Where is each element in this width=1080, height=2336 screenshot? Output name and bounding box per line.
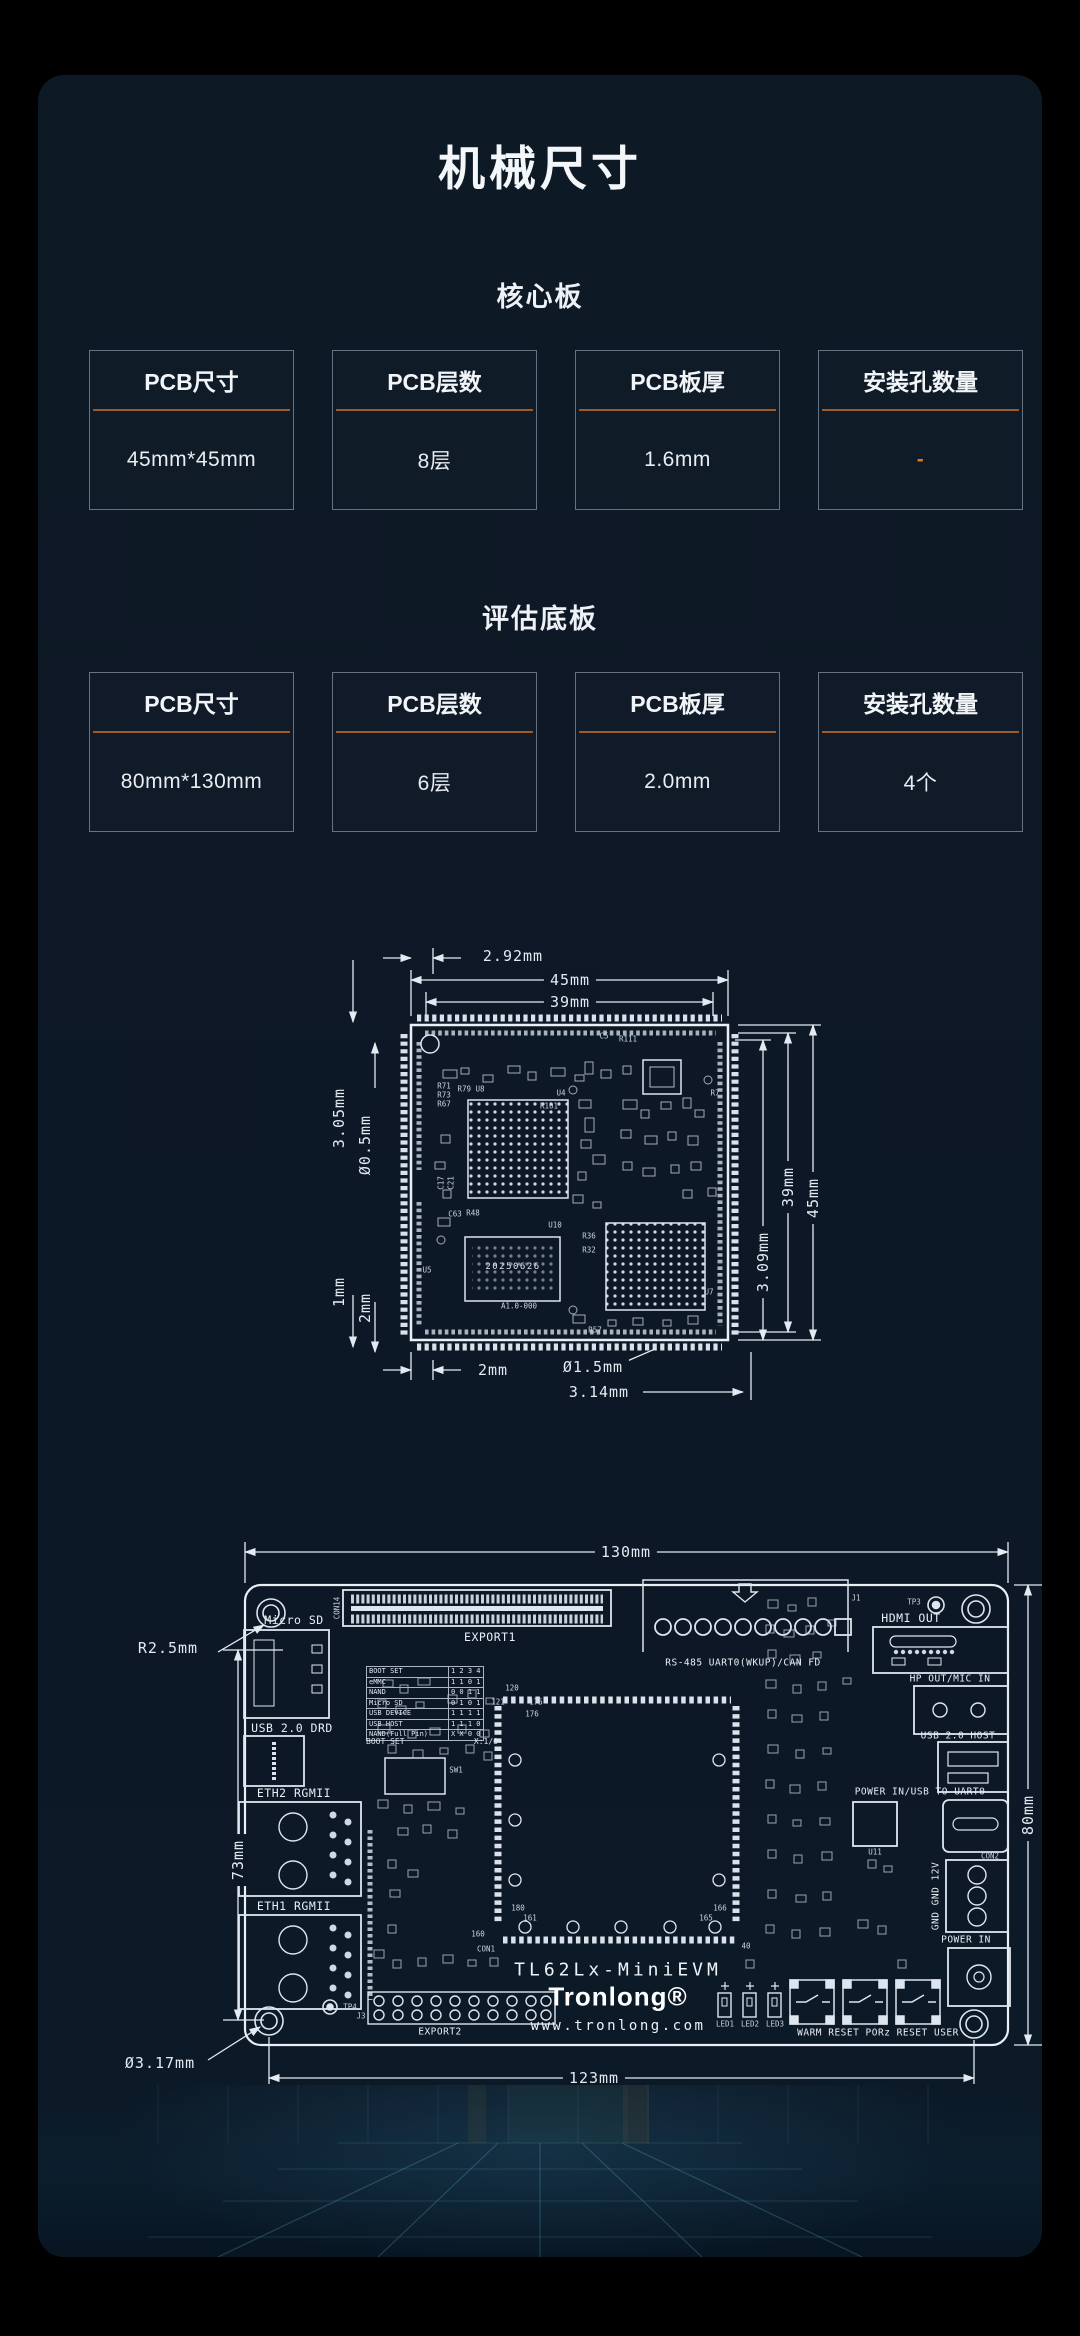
boot-mode-bits: 1 1 1 0 [448, 1720, 483, 1730]
spec-card-value: 6层 [333, 733, 536, 831]
boot-footer-right: X:1/0 [474, 1737, 498, 1746]
reference-designator: U7 [704, 1288, 713, 1297]
reference-designator: 121 [491, 1698, 505, 1707]
port-label: GND GND 12V [931, 1862, 942, 1930]
spec-card: PCB层数 8层 [332, 350, 537, 510]
reference-designator: 166 [713, 1904, 727, 1913]
section-title-baseboard: 评估底板 [38, 597, 1042, 636]
dimension-label: Ø0.5mm [356, 1115, 374, 1175]
boot-mode-row: USB DEVICE 1 1 1 1 [367, 1709, 483, 1720]
led-label: LED3 [766, 2020, 784, 2029]
reference-designator: U11 [868, 1848, 882, 1857]
spec-card-value: - [819, 411, 1022, 509]
boot-mode-name: Micro SD [367, 1699, 448, 1709]
reference-designator: CON1 [477, 1945, 495, 1954]
port-label: HP OUT/MIC IN [910, 1674, 991, 1685]
tronlong-logo: Tronlong® [548, 1982, 687, 2013]
boot-mode-bits: 0 1 0 1 [448, 1699, 483, 1709]
reference-designator: R79 U8 [457, 1085, 484, 1094]
dimension-label: Ø1.5mm [557, 1358, 629, 1376]
export2-header [368, 1992, 555, 2024]
boot-mode-name: eMMC [367, 1678, 448, 1688]
reference-designator: J1 [851, 1594, 860, 1603]
reference-designator: TP3 [907, 1598, 921, 1607]
dimension-label: 3.09mm [754, 1226, 772, 1298]
dimension-label: R2.5mm [138, 1639, 198, 1657]
reference-designator: R67 [437, 1100, 451, 1109]
reference-designator: C5 [599, 1032, 608, 1041]
page-title: 机械尺寸 [38, 130, 1042, 199]
spec-card: PCB尺寸 80mm*130mm [89, 672, 294, 832]
dimension-label: 73mm [229, 1834, 247, 1886]
vendor-url-silkscreen: www.tronlong.com [531, 2018, 706, 2034]
port-label: USB 2.0 HOST [921, 1731, 996, 1742]
pmic-chip [643, 1060, 681, 1094]
perspective-grid [38, 2085, 1042, 2257]
content-panel: 机械尺寸 核心板 PCB尺寸 45mm*45mm PCB层数 8层 PCB板厚 … [38, 75, 1042, 2257]
spec-card-label: 安装孔数量 [819, 673, 1022, 731]
dimension-label: 130mm [595, 1543, 657, 1561]
spec-card-label: PCB板厚 [576, 673, 779, 731]
spec-card-label: PCB尺寸 [90, 351, 293, 409]
boot-mode-bits: 0 0 1 1 [448, 1688, 483, 1698]
boot-footer-left: BOOT SET [366, 1737, 405, 1746]
reference-designator: R101 [540, 1102, 558, 1111]
spec-card: PCB层数 6层 [332, 672, 537, 832]
reference-designator: R36 [582, 1232, 596, 1241]
spec-card: PCB板厚 2.0mm [575, 672, 780, 832]
dimension-label: 2mm [472, 1361, 514, 1379]
dimension-label: 45mm [804, 1172, 822, 1224]
dimension-label: 2mm [356, 1293, 374, 1323]
reference-designator: TP4 [343, 2003, 357, 2012]
push-buttons [790, 1980, 940, 2024]
spec-card-value: 45mm*45mm [90, 411, 293, 509]
reference-designator: C17 [437, 1176, 446, 1190]
reference-designator: 180 [511, 1904, 525, 1913]
hdmi-pins [894, 1650, 954, 1654]
spec-card-value: 2.0mm [576, 733, 779, 831]
reference-designator: R57 [588, 1326, 602, 1335]
boot-mode-bits: 1 1 1 1 [448, 1709, 483, 1719]
reference-designator: U10 [548, 1221, 562, 1230]
spec-card-label: PCB尺寸 [90, 673, 293, 731]
dimension-label: 2.92mm [483, 947, 543, 965]
dimension-label: 3.14mm [563, 1383, 635, 1401]
emmc-bga-chip [606, 1223, 705, 1310]
spec-card-label: PCB层数 [333, 673, 536, 731]
left-edge-connectors [239, 1630, 361, 2009]
dimension-label: 39mm [544, 993, 596, 1011]
spec-card-value: 1.6mm [576, 411, 779, 509]
dimension-label: 1mm [330, 1277, 348, 1307]
dimension-label: 3.05mm [330, 1088, 348, 1148]
section-title-core-board: 核心板 [38, 275, 1042, 314]
led-label: LED1 [716, 2020, 734, 2029]
reference-designator: 176 [525, 1710, 539, 1719]
port-label: EXPORT1 [464, 1630, 516, 1644]
page: { "page": { "title": "机械尺寸" }, "sections… [0, 0, 1080, 2336]
reference-designator: R73 [437, 1091, 451, 1100]
boot-mode-row: NAND 0 0 1 1 [367, 1688, 483, 1699]
boot-table-footer: BOOT SET X:1/0 [366, 1737, 498, 1746]
boot-mode-table: BOOT SET 1 2 3 4 eMMC 1 1 0 1 NAND 0 0 1… [366, 1666, 484, 1741]
boot-mode-name: USB HOST [367, 1720, 448, 1730]
baseboard-spec-cards: PCB尺寸 80mm*130mm PCB层数 6层 PCB板厚 2.0mm 安装… [89, 672, 1023, 832]
reference-designator: R71 [437, 1082, 451, 1091]
port-label: RS-485 UART0(WKUP)/CAN FD [665, 1658, 821, 1669]
user-leds [718, 1982, 781, 2017]
reference-designator: C21 [447, 1176, 456, 1190]
som-area-vias [509, 1754, 725, 1933]
reference-designator: R32 [582, 1246, 596, 1255]
boot-mode-bits: 1 2 3 4 [448, 1667, 483, 1677]
soc-bga-chip [468, 1100, 568, 1198]
boot-mode-row: eMMC 1 1 0 1 [367, 1678, 483, 1689]
chip-marking-label: 20250626 [485, 1262, 540, 1272]
spec-card-value: 80mm*130mm [90, 733, 293, 831]
evaluation-board-drawing: 130mm123mm73mm80mmR2.5mmØ3.17mm Micro SD… [78, 1530, 1042, 2090]
reference-designator: CON14 [333, 1597, 342, 1620]
led-label: LED2 [741, 2020, 759, 2029]
spec-card: 安装孔数量 - [818, 350, 1023, 510]
passive-components [374, 1598, 906, 1968]
reference-designator: U5 [422, 1266, 431, 1275]
dimension-label: 45mm [544, 971, 596, 989]
boot-mode-row: USB HOST 1 1 1 0 [367, 1720, 483, 1731]
port-label: ETH2 RGMII [257, 1786, 331, 1800]
reference-designator: R48 [466, 1209, 480, 1218]
reference-designator: 120 [505, 1684, 519, 1693]
boot-mode-row: BOOT SET 1 2 3 4 [367, 1667, 483, 1678]
spec-card-label: PCB板厚 [576, 351, 779, 409]
boot-mode-row: Micro SD 0 1 0 1 [367, 1699, 483, 1710]
reference-designator: J3 [356, 2012, 365, 2021]
reference-designator: C63 [448, 1210, 462, 1219]
port-label: POWER IN [941, 1935, 991, 1946]
spec-card-value: 8层 [333, 411, 536, 509]
spec-card-label: 安装孔数量 [819, 351, 1022, 409]
board-model-silkscreen: TL62Lx-MiniEVM [514, 1960, 722, 1981]
reference-designator: R111 [619, 1035, 637, 1044]
port-label: ETH1 RGMII [257, 1899, 331, 1913]
dimension-label: Ø3.17mm [125, 2054, 195, 2072]
port-label: USB 2.0 DRD [251, 1721, 333, 1735]
dimension-label: 39mm [779, 1161, 797, 1213]
boot-switch [370, 1758, 445, 2000]
port-label: HDMI OUT [881, 1611, 940, 1625]
boot-mode-name: BOOT SET [367, 1667, 448, 1677]
boot-mode-name: NAND [367, 1688, 448, 1698]
reference-designator: 40 [741, 1942, 750, 1951]
reference-designator: CON2 [981, 1852, 999, 1861]
port-label: EXPORT2 [418, 2027, 462, 2038]
reference-designator: R7 [710, 1089, 719, 1098]
reference-designator: 165 [699, 1914, 713, 1923]
reference-designator: SW1 [449, 1766, 463, 1775]
port-label: WARM RESET PORz RESET USER [797, 2028, 959, 2039]
reference-designator: 160 [471, 1930, 485, 1939]
port-label: POWER IN/USB TO UART0 [855, 1787, 986, 1798]
tech-glow-background [38, 2085, 1042, 2257]
reference-designator: U4 [556, 1089, 565, 1098]
core-board-spec-cards: PCB尺寸 45mm*45mm PCB层数 8层 PCB板厚 1.6mm 安装孔… [89, 350, 1023, 510]
boot-mode-name: USB DEVICE [367, 1709, 448, 1719]
chip-marking-label: A1.0-000 [501, 1302, 537, 1311]
rj45-pins [330, 1812, 352, 1999]
spec-card: PCB板厚 1.6mm [575, 350, 780, 510]
core-board-drawing: 2.92mm45mm39mm3.05mmØ0.5mm1mm2mm2mmØ1.5m… [323, 940, 833, 1445]
dimension-label: 80mm [1019, 1789, 1037, 1841]
spec-card-label: PCB层数 [333, 351, 536, 409]
boot-mode-bits: 1 1 0 1 [448, 1678, 483, 1688]
som-pad-ring [498, 1700, 736, 1940]
port-label: Micro SD [264, 1613, 323, 1627]
reference-designator: 175 [529, 1698, 543, 1707]
spec-card-value: 4个 [819, 733, 1022, 831]
reference-designator: 161 [523, 1914, 537, 1923]
spec-card: 安装孔数量 4个 [818, 672, 1023, 832]
spec-card: PCB尺寸 45mm*45mm [89, 350, 294, 510]
